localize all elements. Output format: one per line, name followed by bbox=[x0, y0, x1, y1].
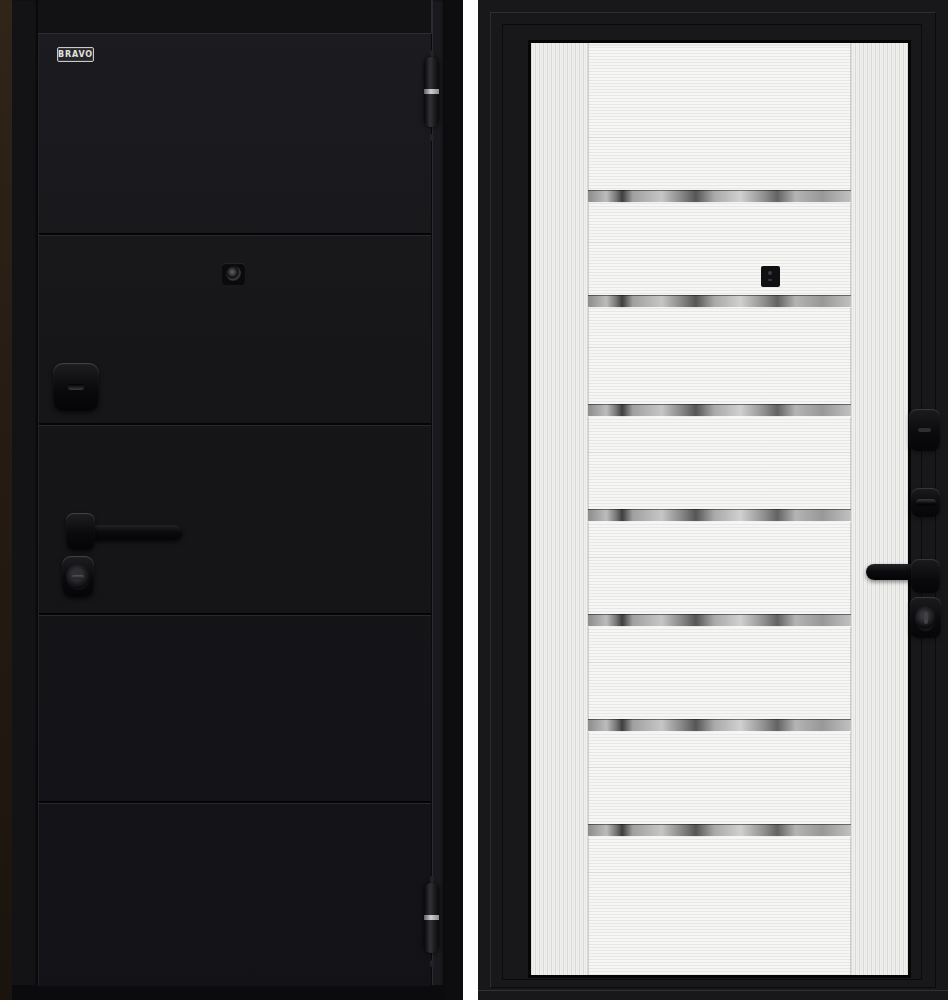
mirror-strip bbox=[588, 190, 851, 203]
groove-line bbox=[39, 613, 431, 616]
door-product-photo: BRAVO bbox=[0, 0, 948, 1000]
handle-rose bbox=[911, 559, 940, 593]
handle-rose bbox=[66, 513, 95, 550]
brand-logo: BRAVO bbox=[57, 47, 94, 62]
groove-line bbox=[39, 423, 431, 426]
cylinder-lock-icon bbox=[62, 556, 94, 597]
peephole-icon bbox=[222, 263, 245, 285]
mirror-strip bbox=[588, 824, 851, 837]
hinge-icon bbox=[424, 883, 439, 953]
exterior-door-photo: BRAVO bbox=[0, 0, 463, 1000]
cylinder-lock-icon bbox=[910, 597, 941, 638]
hinge-icon bbox=[424, 57, 439, 127]
black-door-leaf: BRAVO bbox=[38, 33, 432, 986]
keyhole-escutcheon-icon bbox=[53, 363, 99, 411]
door-stile-right bbox=[851, 43, 908, 975]
keyhole-escutcheon-icon bbox=[909, 409, 940, 451]
door-jamb-right bbox=[431, 0, 445, 1000]
groove-line bbox=[39, 233, 431, 236]
mirror-strip bbox=[588, 509, 851, 522]
white-door-leaf bbox=[528, 40, 911, 978]
door-casing-bottom-step bbox=[478, 990, 948, 991]
mirror-strip bbox=[588, 295, 851, 308]
mirror-strip bbox=[588, 404, 851, 417]
door-jamb-left bbox=[12, 0, 38, 1000]
mirror-strip bbox=[588, 614, 851, 627]
mirror-strip bbox=[588, 719, 851, 732]
door-frame-shadow bbox=[445, 0, 463, 1000]
thumbturn-icon bbox=[911, 488, 940, 517]
peephole-icon bbox=[761, 266, 780, 287]
door-stile-left bbox=[531, 43, 588, 975]
interior-door-photo bbox=[478, 0, 948, 1000]
groove-line bbox=[39, 801, 431, 804]
door-frame-edge bbox=[0, 0, 12, 1000]
door-threshold bbox=[12, 985, 445, 1000]
